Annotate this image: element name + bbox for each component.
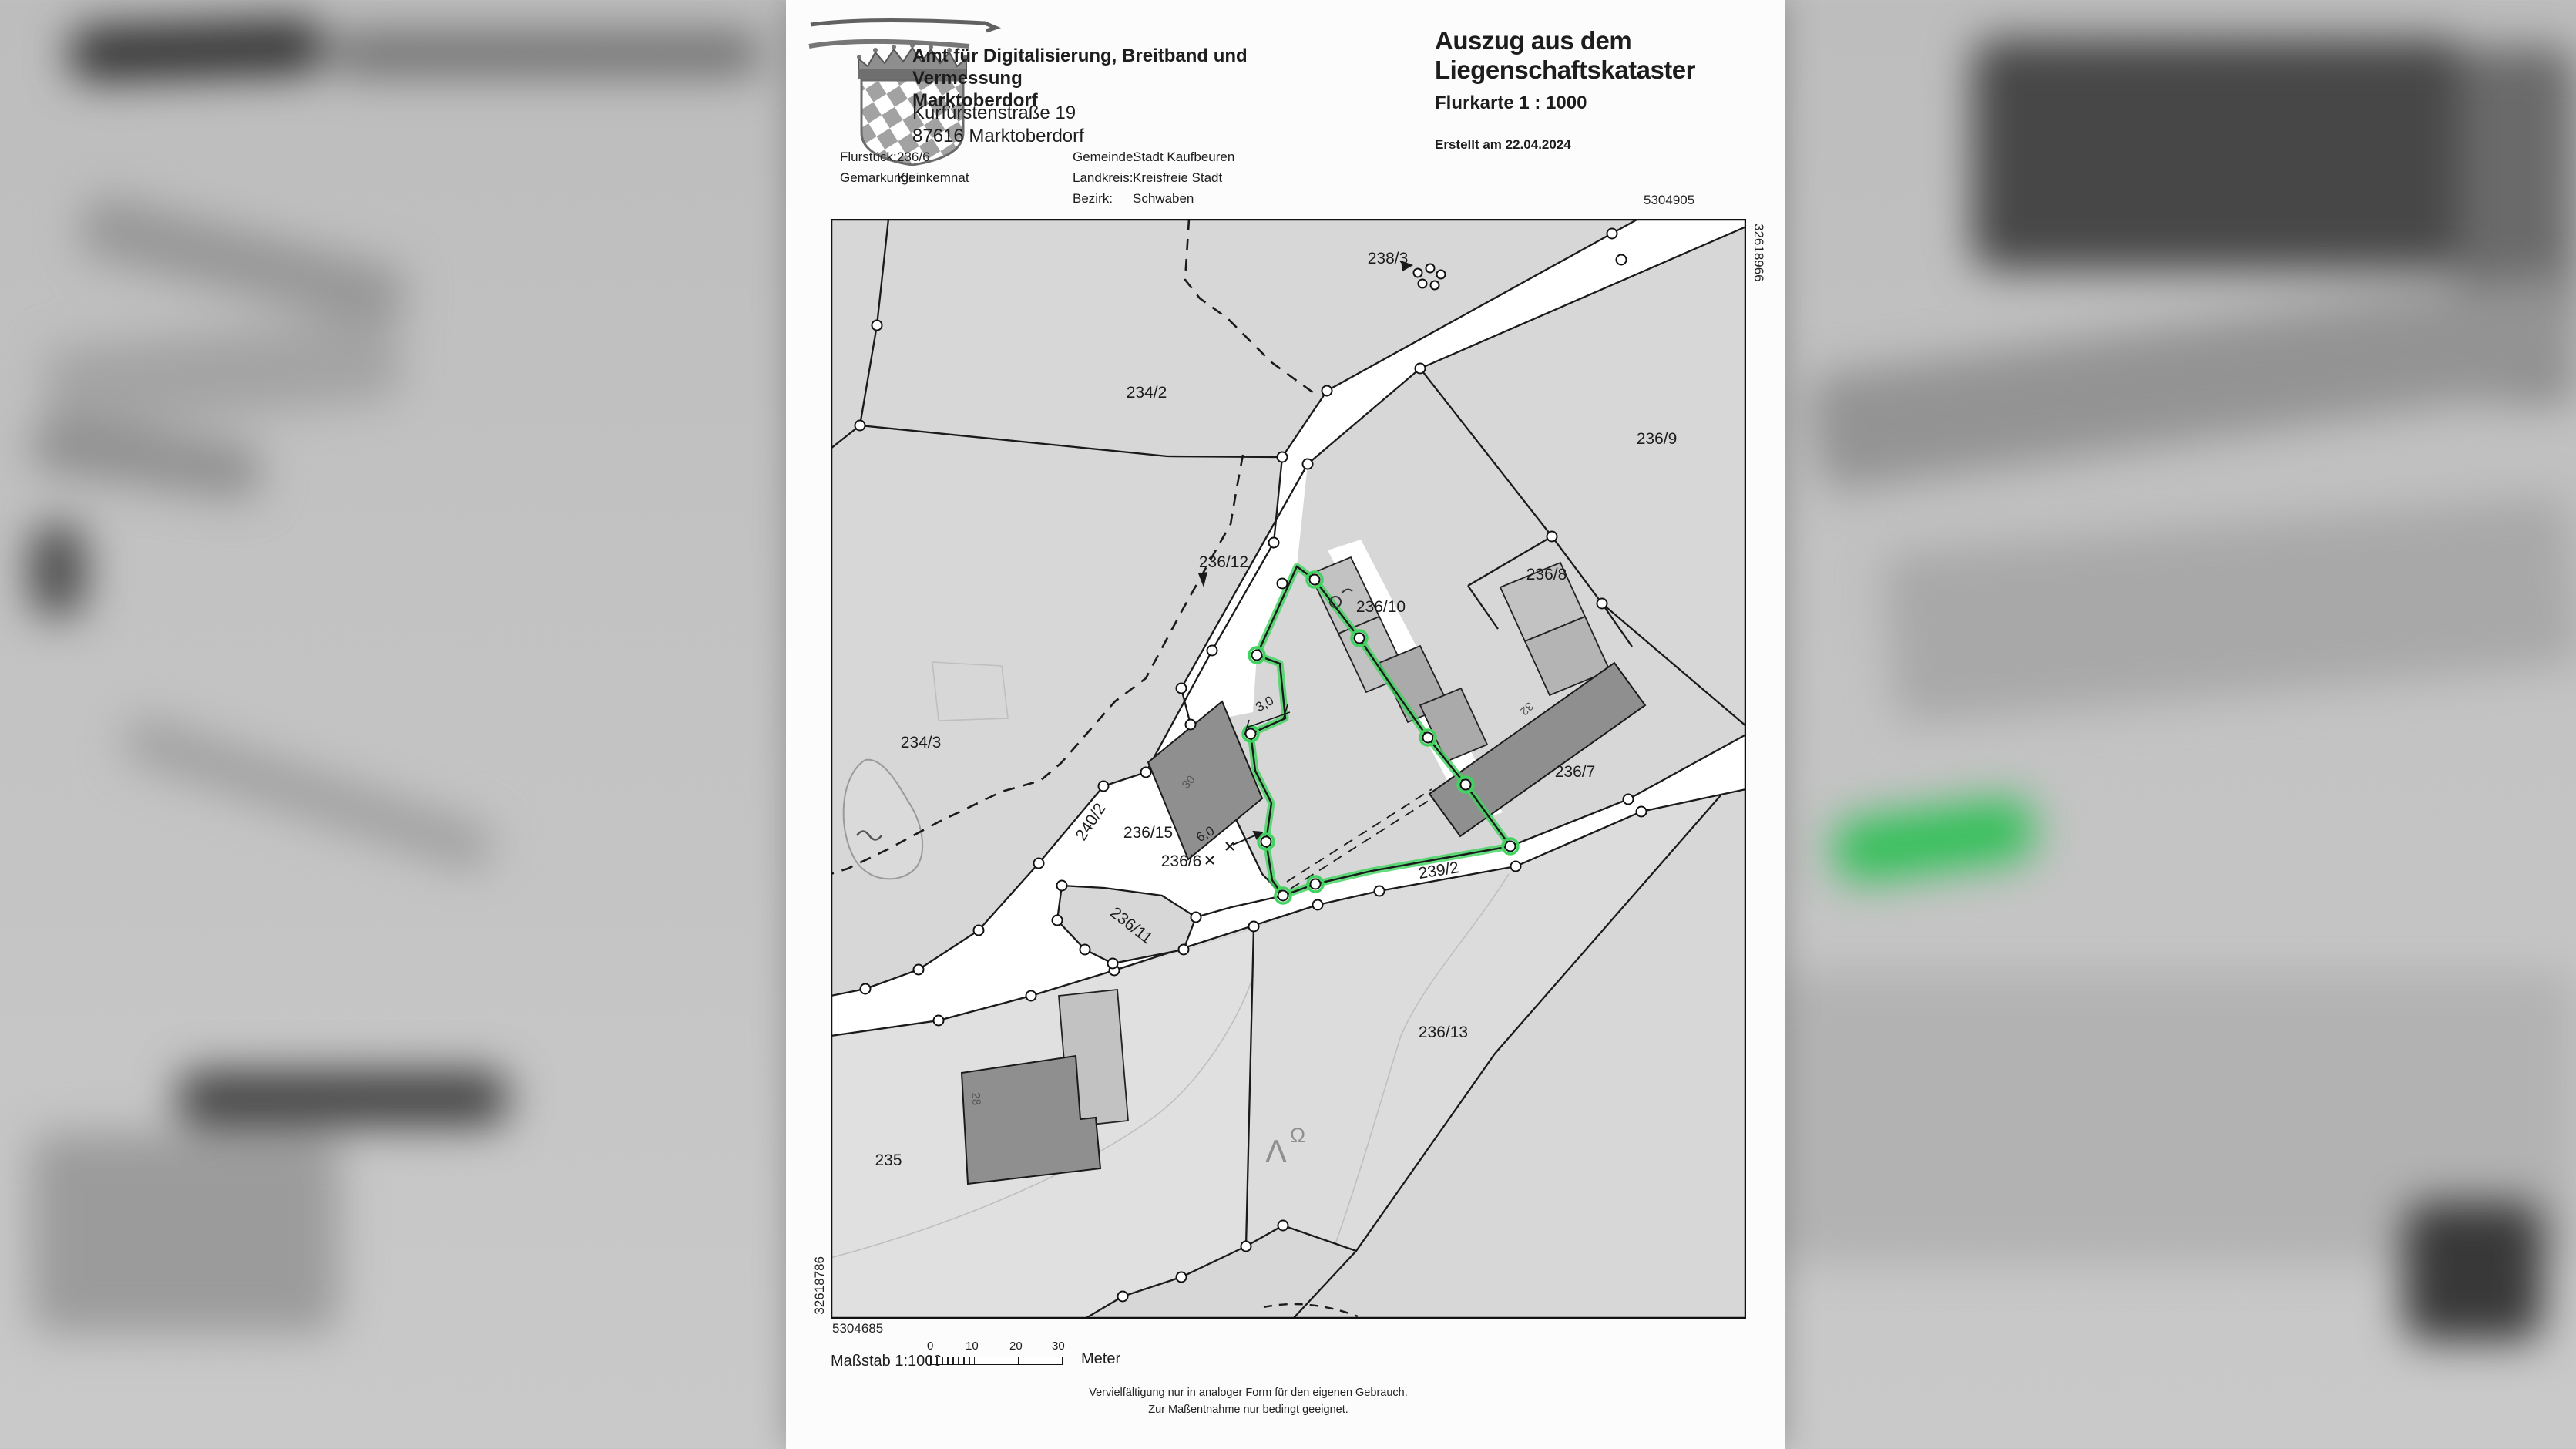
flurstueck-label: Flurstück: [840,146,897,167]
parcel-info-right: Gemeinde:Stadt Kaufbeuren Landkreis:Krei… [1073,146,1234,209]
annotation-Ω: Ω [1290,1124,1305,1147]
cadastral-map: 234/2238/3236/9236/12236/10236/8234/3236… [831,219,1746,1319]
parcel-label-236-8: 236/8 [1526,566,1567,583]
parcel-label-236-15: 236/15 [1123,824,1173,842]
address-line1: Kurfürstenstraße 19 [912,102,1084,125]
landkreis-label: Landkreis: [1073,167,1133,188]
usage-notice: Vervielfältigung nur in analoger Form fü… [1002,1384,1495,1418]
scale-tick-10: 10 [966,1340,979,1353]
scale-bar: 0 10 20 30 [930,1357,1061,1363]
document-title: Auszug aus dem Liegenschaftskataster [1435,26,1774,85]
usage-notice-line1: Vervielfältigung nur in analoger Form fü… [1002,1384,1495,1401]
office-line1: Amt für Digitalisierung, Breitband und V… [912,45,1344,89]
office-address: Kurfürstenstraße 19 87616 Marktoberdorf [912,102,1084,148]
coordinate-easting-left: 32618786 [812,1256,828,1315]
parcel-info-left: Flurstück:236/6 Gemarkung:Kleinkemnat [840,146,969,188]
scale-tick-0: 0 [927,1340,933,1353]
parcel-label-236-12: 236/12 [1199,553,1248,571]
bezirk-label: Bezirk: [1073,188,1133,209]
parcel-label-236-13: 236/13 [1419,1024,1468,1041]
landkreis-value: Kreisfreie Stadt [1133,170,1222,185]
screenshot-root: { "header": { "office_line1": "Amt für D… [0,0,2576,1449]
parcel-label-236-7: 236/7 [1555,763,1596,781]
gemarkung-label: Gemarkung: [840,167,897,188]
parcel-label-236-6: 236/6 [1161,852,1202,870]
parcel-label-236-9: 236/9 [1637,430,1678,448]
created-date: Erstellt am 22.04.2024 [1435,137,1571,153]
map-scale-subtitle: Flurkarte 1 : 1000 [1435,92,1587,114]
coordinate-northing-top: 5304905 [1644,193,1694,208]
gemeinde-label: Gemeinde: [1073,146,1133,167]
cadastral-document-page: Amt für Digitalisierung, Breitband und V… [786,0,1785,1449]
scale-unit: Meter [1081,1350,1120,1368]
gemeinde-value: Stadt Kaufbeuren [1133,150,1234,164]
flurstueck-value: 236/6 [897,150,930,164]
annotation-Λ: Λ [1265,1133,1287,1169]
parcel-label-238-3: 238/3 [1368,250,1409,267]
address-line2: 87616 Marktoberdorf [912,125,1084,148]
parcel-label-236-10: 236/10 [1356,598,1406,616]
parcel-label-234-2: 234/2 [1127,384,1167,402]
usage-notice-line2: Zur Maßentnahme nur bedingt geeignet. [1002,1401,1495,1418]
scale-tick-20: 20 [1009,1340,1023,1353]
scale-tick-30: 30 [1052,1340,1065,1353]
title-line2: Liegenschaftskataster [1435,55,1774,85]
parcel-label-235: 235 [875,1151,902,1169]
gemarkung-value: Kleinkemnat [897,170,969,185]
title-line1: Auszug aus dem [1435,26,1774,55]
parcel-label-234-3: 234/3 [901,734,942,751]
coordinate-easting-right: 32618966 [1751,224,1766,282]
coordinate-northing-bottom: 5304685 [832,1321,883,1336]
bezirk-value: Schwaben [1133,191,1194,206]
annotation-28: 28 [969,1092,982,1106]
scale-label: Maßstab 1:1000 [831,1353,942,1370]
